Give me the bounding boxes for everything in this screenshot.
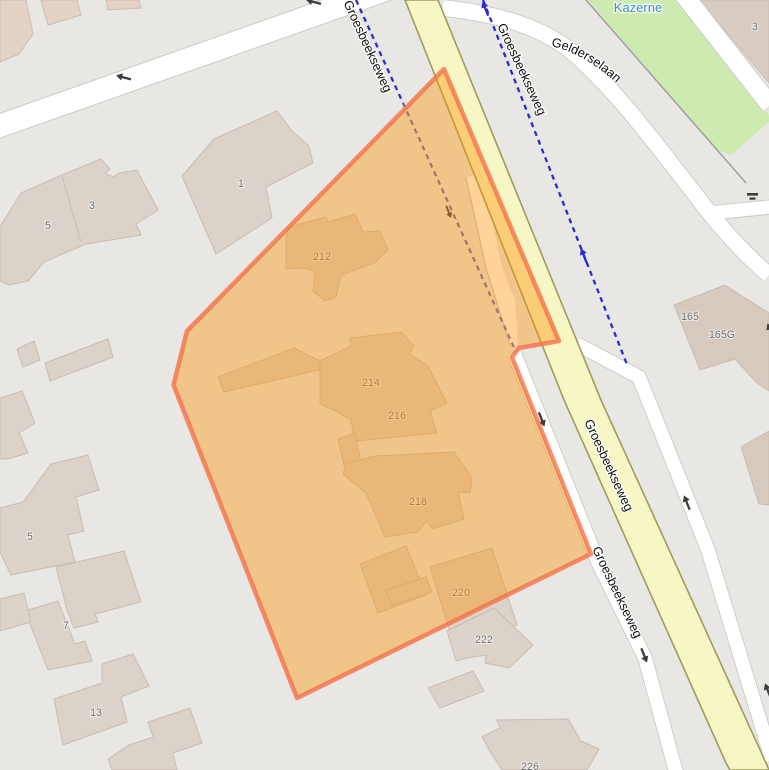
svg-text:165G: 165G bbox=[709, 329, 735, 341]
svg-text:5: 5 bbox=[45, 220, 51, 232]
svg-text:165: 165 bbox=[681, 311, 699, 323]
svg-text:5: 5 bbox=[27, 531, 33, 543]
svg-text:Kazerne: Kazerne bbox=[614, 0, 662, 15]
svg-text:13: 13 bbox=[90, 707, 102, 719]
svg-text:222: 222 bbox=[475, 634, 493, 646]
svg-text:3: 3 bbox=[89, 200, 95, 212]
svg-text:3: 3 bbox=[752, 21, 758, 33]
svg-text:1: 1 bbox=[238, 178, 244, 190]
svg-text:7: 7 bbox=[63, 620, 69, 632]
svg-text:226: 226 bbox=[521, 761, 539, 770]
